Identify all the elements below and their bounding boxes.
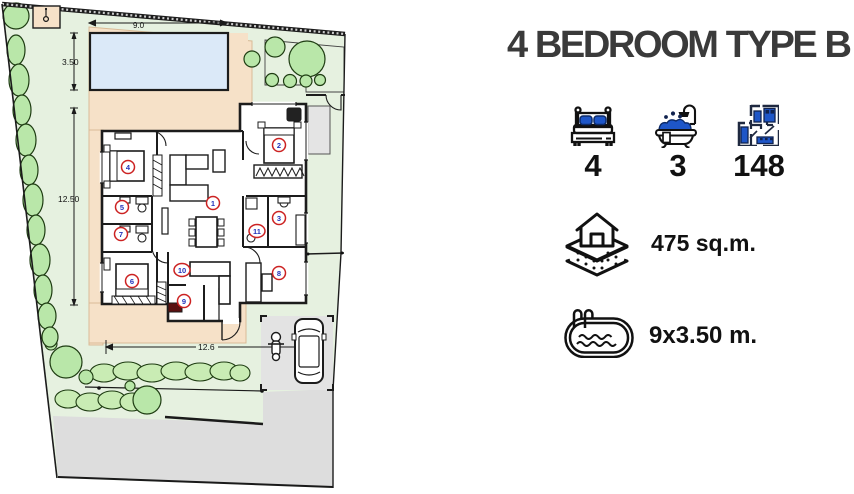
svg-text:12.50: 12.50 [58,194,80,204]
svg-text:3: 3 [277,214,281,223]
svg-text:9: 9 [182,297,186,306]
svg-text:12.6: 12.6 [198,342,215,352]
svg-text:3.50: 3.50 [62,57,79,67]
svg-text:7: 7 [119,230,123,239]
svg-text:5: 5 [120,203,124,212]
svg-text:10: 10 [178,266,186,275]
svg-text:2: 2 [277,141,281,150]
svg-text:1: 1 [211,199,215,208]
svg-text:8: 8 [277,269,281,278]
svg-text:6: 6 [130,277,134,286]
svg-text:9.0: 9.0 [133,21,145,30]
svg-text:11: 11 [253,227,261,236]
